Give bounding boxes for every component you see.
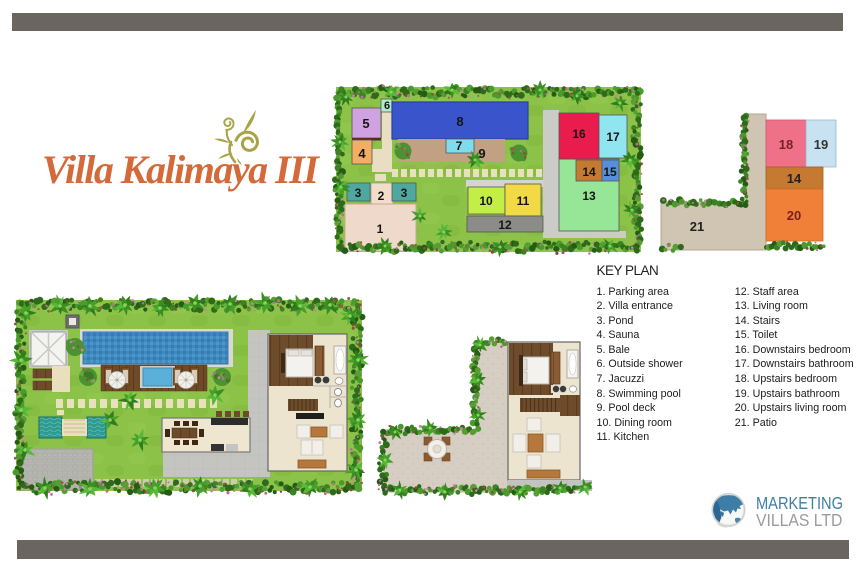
svg-text:18: 18 bbox=[779, 137, 793, 152]
svg-text:20: 20 bbox=[787, 208, 801, 223]
svg-text:7: 7 bbox=[456, 139, 463, 153]
svg-text:17: 17 bbox=[606, 130, 620, 144]
svg-text:11: 11 bbox=[517, 194, 530, 208]
svg-text:21: 21 bbox=[690, 219, 704, 234]
svg-text:19: 19 bbox=[814, 137, 828, 152]
svg-text:13: 13 bbox=[582, 189, 596, 203]
svg-text:4: 4 bbox=[358, 146, 366, 161]
svg-text:12: 12 bbox=[498, 218, 512, 232]
svg-text:1: 1 bbox=[377, 222, 384, 236]
svg-text:9: 9 bbox=[478, 146, 485, 161]
svg-text:6: 6 bbox=[384, 100, 390, 112]
svg-text:3: 3 bbox=[401, 186, 408, 200]
svg-text:8: 8 bbox=[456, 114, 463, 129]
svg-text:10: 10 bbox=[479, 194, 493, 208]
svg-text:3: 3 bbox=[355, 186, 362, 200]
svg-text:15: 15 bbox=[603, 165, 617, 179]
svg-text:14: 14 bbox=[582, 165, 596, 179]
svg-text:5: 5 bbox=[362, 116, 369, 131]
svg-text:16: 16 bbox=[572, 127, 586, 141]
svg-text:2: 2 bbox=[378, 189, 385, 203]
svg-text:14: 14 bbox=[787, 171, 802, 186]
